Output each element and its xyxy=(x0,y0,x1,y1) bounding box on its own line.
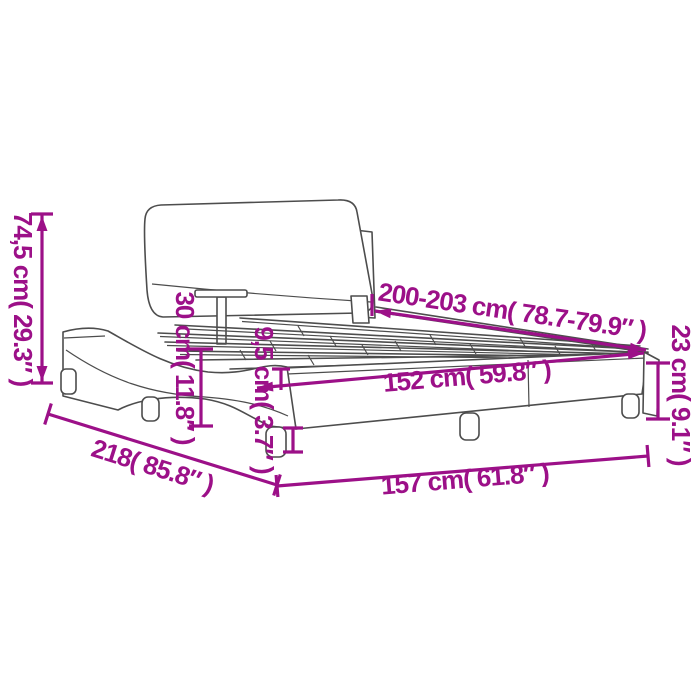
dimension-label: 74,5 cm( 29.3″ ) xyxy=(8,212,38,387)
leg-mid-left xyxy=(142,397,159,421)
dimension-total-length: 218( 85.8″ ) xyxy=(45,404,281,500)
dimension-label: 23 cm( 9.1″ ) xyxy=(666,324,696,465)
leg-back-left xyxy=(61,369,76,394)
headboard-post xyxy=(351,296,369,323)
dimension-frame-width: 157 cm( 61.8″ ) xyxy=(276,445,649,501)
center-support-plate xyxy=(195,290,247,297)
center-support-stem xyxy=(217,297,226,344)
dimension-label: 9,5 cm( 3.7″ ) xyxy=(249,326,279,474)
bed-dimension-diagram: 74,5 cm( 29.3″ ) 30 cm( 11.8″ ) 9,5 cm( … xyxy=(0,0,700,700)
leg-front-middle xyxy=(460,413,479,440)
dimension-label: 200-203 cm( 78.7-79.9″ ) xyxy=(376,277,648,346)
leg-front-right xyxy=(622,394,639,418)
dimension-total-height: 74,5 cm( 29.3″ ) xyxy=(8,212,53,387)
dimension-label: 30 cm( 11.8″ ) xyxy=(170,291,200,444)
dimension-label: 157 cm( 61.8″ ) xyxy=(380,457,550,500)
diagram-canvas: 74,5 cm( 29.3″ ) 30 cm( 11.8″ ) 9,5 cm( … xyxy=(0,0,700,700)
